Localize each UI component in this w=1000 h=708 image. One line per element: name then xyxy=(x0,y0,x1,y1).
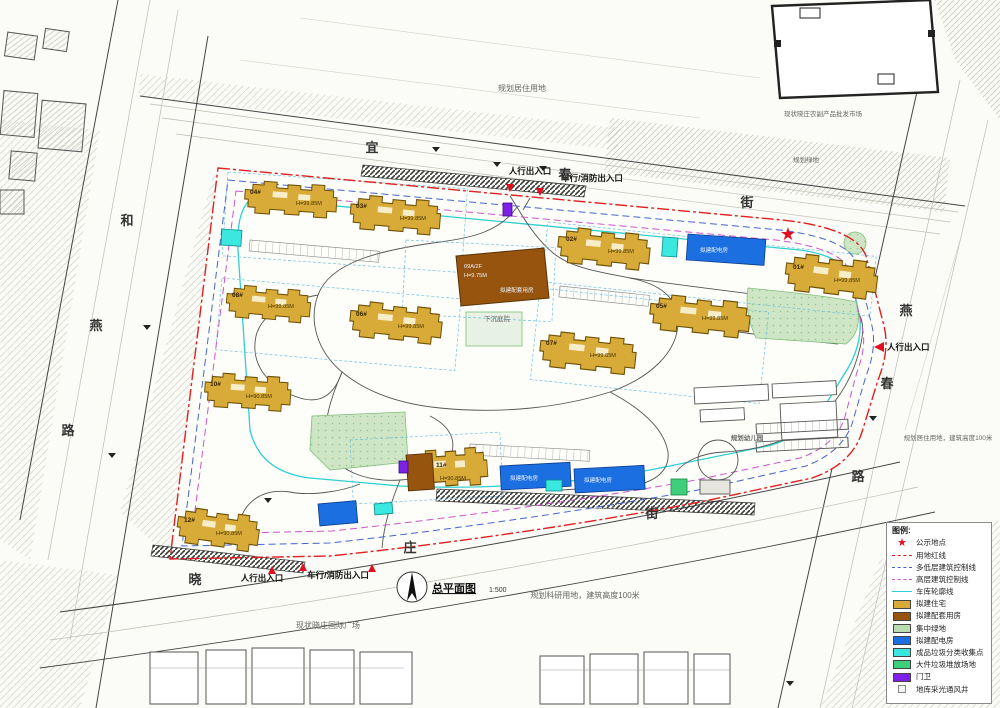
street-left-char-3: 路 xyxy=(61,423,75,438)
building-10 xyxy=(204,372,292,412)
building-12-height: H=90.85M xyxy=(216,531,242,537)
blue-dash-line-icon xyxy=(892,567,912,568)
building-06-label: 06# xyxy=(356,311,367,318)
drawing-title: 总平面图 xyxy=(432,581,476,595)
top-pedestrian-entrance-label: 人行出入口 xyxy=(509,166,552,176)
sunken-courtyard-label: 下沉庭院 xyxy=(484,314,511,323)
building-01-label: 01# xyxy=(793,264,804,271)
building-08-label: 08# xyxy=(232,292,243,299)
building-03 xyxy=(349,194,442,236)
site-plan-canvas: 地下车库出入口 规划幼儿园 xyxy=(0,0,1000,708)
building-05-label: 05# xyxy=(656,303,667,310)
street-bottom-char-1: 晓 xyxy=(188,572,201,587)
legend-item-lowrise-line: 多低层建筑控制线 xyxy=(892,561,987,573)
east-parcel-label: 规划居住用地，建筑高度100米 xyxy=(904,433,993,442)
blue-swatch-icon xyxy=(892,636,912,645)
building-10-height: H=90.85M xyxy=(246,394,272,400)
street-top-char-1: 宜 xyxy=(365,140,378,155)
building-03-height: H=99.85M xyxy=(400,216,426,222)
building-07-label: 07# xyxy=(546,340,557,347)
service-building: 09A/2F H=9.75M 拟建配套用房 xyxy=(456,248,549,306)
bulky-waste-site xyxy=(671,479,687,495)
northeast-market-label: 现状晓庄农副产品批发市场 xyxy=(784,109,863,118)
street-top-char-2: 春 xyxy=(557,167,572,182)
waste-point-south xyxy=(546,480,562,491)
garage-ramp-label: 地下车库出入口 xyxy=(576,506,615,514)
building-02-height: H=99.85M xyxy=(608,249,634,255)
legend-item-residential: 拟建住宅 xyxy=(892,598,987,610)
legend-item-vent-shaft: 地库采光通风井 xyxy=(892,683,987,695)
street-top-char-3: 街 xyxy=(739,195,753,210)
street-left-char-1: 和 xyxy=(120,213,133,228)
building-02-label: 02# xyxy=(566,236,577,243)
legend-item-notice: ★ 公示地点 xyxy=(892,537,987,549)
legend-item-guard: 门卫 xyxy=(892,671,987,683)
brown-swatch-icon xyxy=(892,612,912,621)
street-right-char-1: 燕 xyxy=(899,303,912,318)
street-bottom-char-3: 街 xyxy=(644,506,658,521)
street-bottom-char-2: 庄 xyxy=(403,540,416,555)
legend-item-green: 集中绿地 xyxy=(892,622,987,634)
northeast-green-label: 规划绿地 xyxy=(793,155,820,164)
building-11-height: H=90.85M xyxy=(440,476,466,482)
building-08-height: H=99.85M xyxy=(268,304,294,310)
lightgreen-swatch-icon xyxy=(892,624,912,633)
street-right-char-3: 路 xyxy=(851,469,865,484)
south-parcel-label: 规划科研用地，建筑高度100米 xyxy=(530,590,639,600)
purple-swatch-icon xyxy=(892,673,912,682)
guard-booth-north xyxy=(503,203,512,216)
legend-item-garage-line: 车库轮廓线 xyxy=(892,586,987,598)
service-building-label: 09A/2F xyxy=(464,264,483,270)
building-01-height: H=99.85M xyxy=(834,278,860,284)
service-building-note: 拟建配套用房 xyxy=(500,286,534,294)
building-05-height: H=99.85M xyxy=(702,316,728,322)
building-11-label: 11# xyxy=(436,462,447,469)
drawing-scale: 1:500 xyxy=(489,587,507,594)
waste-point-northwest xyxy=(221,229,242,246)
magenta-dash-line-icon xyxy=(892,579,912,580)
compass xyxy=(397,572,427,602)
building-04 xyxy=(244,180,338,219)
legend-item-bulky-waste: 大件垃圾堆放场地 xyxy=(892,659,987,671)
vent-shaft-square-icon xyxy=(892,685,912,693)
power-room-northeast-label: 拟建配电房 xyxy=(700,246,728,254)
building-11-annex xyxy=(406,453,434,491)
existing-market-building xyxy=(772,0,938,98)
waste-point-northeast xyxy=(662,237,678,257)
site-plan-drawing: 地下车库出入口 规划幼儿园 xyxy=(0,0,1000,708)
street-right-char-2: 春 xyxy=(879,376,894,391)
waste-point-southwest xyxy=(374,502,393,515)
public-notice-star-icon: ★ xyxy=(780,224,796,244)
power-room-southwest xyxy=(318,501,358,526)
building-10-label: 10# xyxy=(210,381,221,388)
kindergarten-label: 规划幼儿园 xyxy=(731,433,764,442)
gold-swatch-icon xyxy=(892,600,912,609)
legend-item-waste-point: 成品垃圾分类收集点 xyxy=(892,647,987,659)
power-room-south-1-label: 拟建配电房 xyxy=(510,474,538,482)
north-parcel-label: 规划居住用地 xyxy=(498,83,546,93)
star-icon: ★ xyxy=(892,538,912,549)
building-07-height: H=99.85M xyxy=(590,353,616,359)
building-12-label: 12# xyxy=(184,517,195,524)
legend-item-support: 拟建配套用房 xyxy=(892,610,987,622)
building-06-height: H=99.85M xyxy=(398,324,424,330)
cyan-swatch-icon xyxy=(892,648,912,657)
building-04-label: 04# xyxy=(250,189,261,196)
guard-booth-south xyxy=(399,461,408,473)
building-04-height: H=99.85M xyxy=(296,201,322,207)
bottom-pedestrian-entrance-label: 人行出入口 xyxy=(241,573,284,583)
power-room-south-2-label: 拟建配电房 xyxy=(584,476,612,484)
cyan-line-icon xyxy=(892,591,912,592)
legend-item-highrise-line: 高层建筑控制线 xyxy=(892,574,987,586)
legend-title: 图例: xyxy=(892,527,987,535)
right-pedestrian-entrance-label: 人行出入口 xyxy=(887,342,930,352)
red-dash-line-icon xyxy=(892,555,912,556)
service-building-height: H=9.75M xyxy=(464,273,487,279)
bottom-vehicle-entrance-label: 车行/消防出入口 xyxy=(307,570,369,580)
green-swatch-icon xyxy=(892,660,912,669)
south-plaza-label: 现状晓庄国际广场 xyxy=(296,620,360,630)
legend-item-red-line: 用地红线 xyxy=(892,549,987,561)
street-left-char-2: 燕 xyxy=(89,318,102,333)
legend-item-power: 拟建配电房 xyxy=(892,635,987,647)
building-03-label: 03# xyxy=(356,203,367,210)
legend: 图例: ★ 公示地点 用地红线 多低层建筑控制线 高层建筑控制线 车库轮廓线 拟… xyxy=(886,522,992,704)
